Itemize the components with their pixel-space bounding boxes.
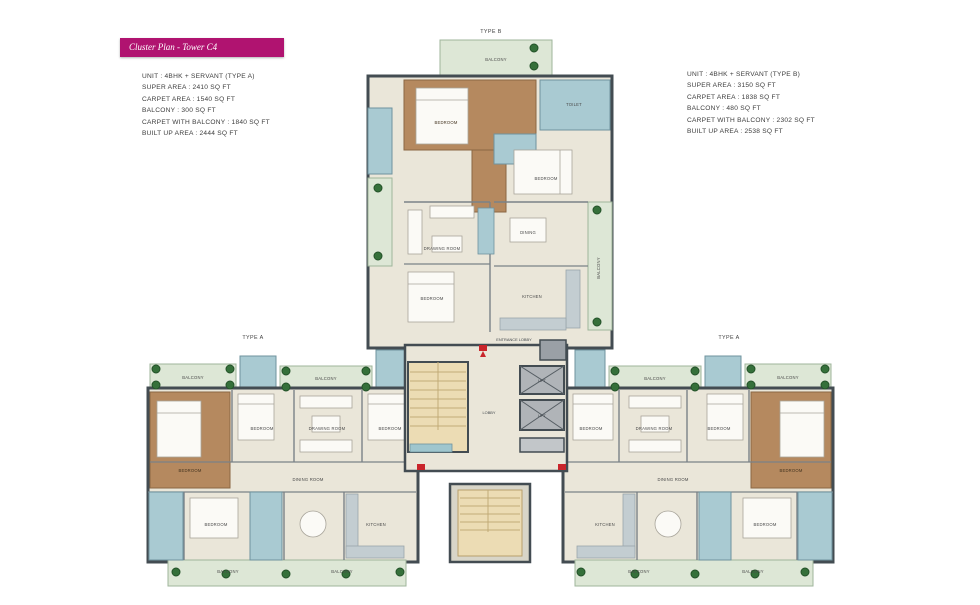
- room-label-balcony: BALCONY: [485, 57, 506, 62]
- type-a-label: TYPE A: [718, 335, 739, 341]
- bed: [514, 150, 572, 194]
- plant-icon: [593, 206, 601, 214]
- toilet-room: [368, 108, 392, 174]
- service-shaft: [520, 438, 564, 452]
- entry-marker-icon: [417, 464, 425, 470]
- type-a-label: TYPE A: [242, 335, 263, 341]
- plant-icon: [593, 318, 601, 326]
- room-label-bedroom: BEDROOM: [378, 426, 401, 431]
- lift-label: LIFT: [538, 378, 547, 383]
- room-label-bedroom: BEDROOM: [420, 296, 443, 301]
- room-label-kitchen: KITCHEN: [366, 522, 386, 527]
- room-label-balcony: BALCONY: [644, 376, 665, 381]
- room-label-balcony: BALCONY: [596, 257, 601, 278]
- room-label-bedroom: BEDROOM: [779, 468, 802, 473]
- entrance-lobby-label: ENTRANCE LOBBY: [496, 337, 532, 342]
- entry-marker-icon: [558, 464, 566, 470]
- room-label-balcony: BALCONY: [628, 569, 649, 574]
- sofa: [430, 206, 474, 218]
- service-shaft: [540, 340, 566, 360]
- room-label-dining-room: DINING ROOM: [657, 477, 688, 482]
- room-label-kitchen: KITCHEN: [522, 294, 542, 299]
- room-label-bedroom: BEDROOM: [707, 426, 730, 431]
- lower-staircase: [458, 490, 522, 556]
- room-label-drawing-room: DRAWING ROOM: [309, 426, 346, 431]
- kitchen-counter: [500, 318, 566, 330]
- room-label-drawing-room: DRAWING ROOM: [636, 426, 673, 431]
- cluster-plan-page: Cluster Plan - Tower C4 UNIT : 4BHK + SE…: [0, 0, 980, 605]
- lobby-label: LOBBY: [483, 410, 496, 415]
- room-label-kitchen: KITCHEN: [595, 522, 615, 527]
- room-label-dining-room: DINING ROOM: [292, 477, 323, 482]
- room-label-balcony: BALCONY: [742, 569, 763, 574]
- room-label-toilet: TOILET: [566, 102, 582, 107]
- room-label-bedroom: BEDROOM: [178, 468, 201, 473]
- room-label-bedroom: BEDROOM: [753, 522, 776, 527]
- lift-label: LIFT: [538, 413, 547, 418]
- bed: [416, 88, 468, 144]
- room-label-dining: DINING: [520, 230, 536, 235]
- sofa: [408, 210, 422, 254]
- room-label-balcony: BALCONY: [315, 376, 336, 381]
- room-label-bedroom: BEDROOM: [204, 522, 227, 527]
- room-label-bedroom: BEDROOM: [534, 176, 557, 181]
- plant-icon: [374, 252, 382, 260]
- top-wing: [368, 40, 612, 348]
- entry-marker-icon: [479, 345, 487, 351]
- plant-icon: [374, 184, 382, 192]
- room-label-balcony: BALCONY: [331, 569, 352, 574]
- room-label-bedroom: BEDROOM: [434, 120, 457, 125]
- room-label-bedroom: BEDROOM: [579, 426, 602, 431]
- kitchen-counter: [566, 270, 580, 328]
- stair-landing: [410, 444, 452, 452]
- plant-icon: [530, 62, 538, 70]
- room-label-bedroom: BEDROOM: [250, 426, 273, 431]
- type-b-label: TYPE B: [480, 29, 502, 35]
- room-label-balcony: BALCONY: [777, 375, 798, 380]
- central-core: [405, 340, 567, 562]
- plant-icon: [530, 44, 538, 52]
- floor-plan: TYPE B TYPE A TYPE A BALCONY BEDROOM TOI…: [0, 0, 980, 605]
- room-label-balcony: BALCONY: [217, 569, 238, 574]
- room-label-drawing-room: DRAWING ROOM: [424, 246, 461, 251]
- toilet-room: [478, 208, 494, 254]
- room-label-balcony: BALCONY: [182, 375, 203, 380]
